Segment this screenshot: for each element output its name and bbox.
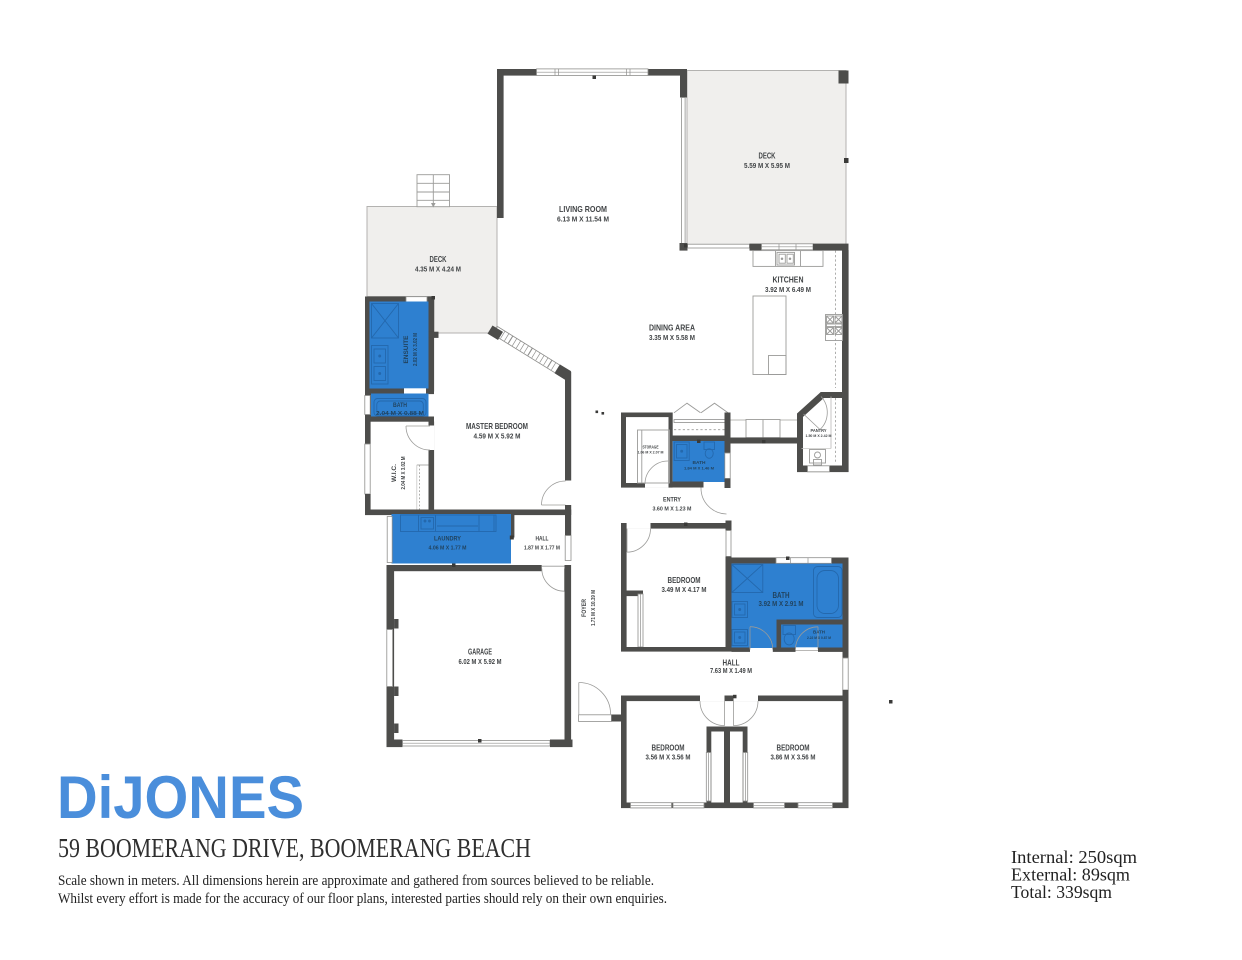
svg-text:DECK: DECK <box>759 151 776 161</box>
svg-text:1.87 M X 1.77 M: 1.87 M X 1.77 M <box>524 546 560 552</box>
svg-text:Scale shown in meters. All dim: Scale shown in meters. All dimensions he… <box>58 873 654 889</box>
svg-text:GARAGE: GARAGE <box>468 647 492 657</box>
svg-text:2.04 M X 3.02 M: 2.04 M X 3.02 M <box>401 456 407 489</box>
svg-text:FOYER: FOYER <box>582 598 588 617</box>
svg-text:BATH: BATH <box>773 591 790 600</box>
svg-text:HALL: HALL <box>723 659 740 668</box>
svg-text:BEDROOM: BEDROOM <box>777 744 810 753</box>
svg-text:59 BOOMERANG DRIVE, BOOMERANG: 59 BOOMERANG DRIVE, BOOMERANG BEACH <box>58 833 531 863</box>
svg-text:BATH: BATH <box>813 630 825 635</box>
svg-text:BEDROOM: BEDROOM <box>652 744 685 753</box>
svg-text:MASTER BEDROOM: MASTER BEDROOM <box>466 421 528 431</box>
svg-text:4.06 M X 1.77 M: 4.06 M X 1.77 M <box>429 546 467 552</box>
svg-text:3.35 M X 5.58 M: 3.35 M X 5.58 M <box>649 333 695 342</box>
svg-text:W.I.C.: W.I.C. <box>392 464 398 482</box>
svg-text:1.06 M X 2.07 M: 1.06 M X 2.07 M <box>638 450 665 455</box>
svg-text:LIVING ROOM: LIVING ROOM <box>559 204 607 214</box>
svg-text:3.92 M X 2.91 M: 3.92 M X 2.91 M <box>759 601 804 608</box>
svg-text:LAUNDRY: LAUNDRY <box>434 537 461 543</box>
svg-text:4.35 M X 4.24 M: 4.35 M X 4.24 M <box>415 265 461 274</box>
svg-text:DINING AREA: DINING AREA <box>649 323 695 333</box>
svg-text:Total: 339sqm: Total: 339sqm <box>1011 882 1112 902</box>
svg-text:3.56 M X 3.56 M: 3.56 M X 3.56 M <box>646 755 691 762</box>
svg-text:6.02 M X 5.92 M: 6.02 M X 5.92 M <box>459 657 502 666</box>
svg-text:1.50 M X 2.42 M: 1.50 M X 2.42 M <box>806 433 833 438</box>
svg-text:2.04 M X 0.88 M: 2.04 M X 0.88 M <box>376 411 425 417</box>
svg-text:HALL: HALL <box>536 537 549 543</box>
svg-text:2.22 M X 0.87 M: 2.22 M X 0.87 M <box>807 635 832 640</box>
svg-text:ENSUITE: ENSUITE <box>404 336 410 364</box>
svg-text:7.63 M X 1.49 M: 7.63 M X 1.49 M <box>710 668 752 675</box>
svg-text:5.59 M X 5.95 M: 5.59 M X 5.95 M <box>744 161 790 170</box>
svg-text:3.92 M X 6.49 M: 3.92 M X 6.49 M <box>765 285 811 294</box>
svg-text:1.84 M X 1.46 M: 1.84 M X 1.46 M <box>684 466 715 471</box>
svg-text:BATH: BATH <box>693 460 706 465</box>
svg-text:3.86 M X 3.56 M: 3.86 M X 3.56 M <box>771 755 816 762</box>
svg-text:3.60 M X 1.23 M: 3.60 M X 1.23 M <box>653 507 692 513</box>
svg-text:ENTRY: ENTRY <box>663 498 681 504</box>
svg-text:6.13 M X 11.54 M: 6.13 M X 11.54 M <box>557 215 609 224</box>
svg-text:1.71 M X 10.39 M: 1.71 M X 10.39 M <box>591 590 597 626</box>
svg-text:KITCHEN: KITCHEN <box>773 275 804 285</box>
svg-text:2.02 M X 3.02 M: 2.02 M X 3.02 M <box>413 333 419 366</box>
svg-text:DiJONES: DiJONES <box>57 764 304 831</box>
svg-text:3.49 M X 4.17 M: 3.49 M X 4.17 M <box>662 587 707 594</box>
svg-text:DECK: DECK <box>430 254 447 264</box>
svg-text:Whilst every effort is made fo: Whilst every effort is made for the accu… <box>58 891 667 907</box>
svg-text:BEDROOM: BEDROOM <box>668 576 701 585</box>
svg-text:4.59 M X 5.92 M: 4.59 M X 5.92 M <box>474 432 521 441</box>
svg-text:BATH: BATH <box>393 403 407 409</box>
